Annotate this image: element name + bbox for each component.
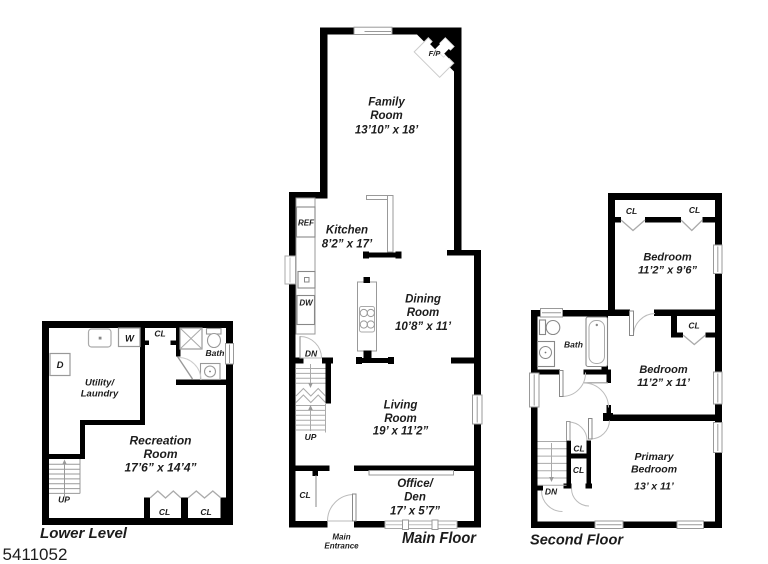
svg-text:17’ x 5’7”: 17’ x 5’7” <box>390 506 440 518</box>
svg-text:Den: Den <box>404 492 426 504</box>
svg-text:CL: CL <box>573 465 584 475</box>
svg-text:F/P: F/P <box>429 49 442 58</box>
svg-text:CL: CL <box>200 507 211 517</box>
svg-text:Primary: Primary <box>634 451 674 463</box>
svg-text:Dining: Dining <box>405 294 441 306</box>
svg-text:CL: CL <box>299 490 310 500</box>
svg-text:CL: CL <box>154 329 165 339</box>
svg-text:CL: CL <box>159 507 170 517</box>
svg-text:D: D <box>57 360 64 371</box>
svg-text:Kitchen: Kitchen <box>326 225 368 237</box>
svg-text:Room: Room <box>370 110 403 122</box>
svg-text:Second Floor: Second Floor <box>530 532 624 549</box>
svg-text:19’ x 11’2”: 19’ x 11’2” <box>373 426 429 438</box>
svg-text:11’2” x 11’: 11’2” x 11’ <box>637 377 691 389</box>
svg-text:13’ x 11’: 13’ x 11’ <box>634 481 675 493</box>
svg-text:UP: UP <box>58 495 70 505</box>
svg-text:13’10” x 18’: 13’10” x 18’ <box>355 125 419 137</box>
svg-text:Living: Living <box>384 400 418 412</box>
svg-text:DN: DN <box>545 487 558 497</box>
svg-text:Lower Level: Lower Level <box>40 526 128 542</box>
svg-text:Bedroom: Bedroom <box>639 364 688 376</box>
svg-text:10’8” x 11’: 10’8” x 11’ <box>395 321 452 333</box>
svg-text:CL: CL <box>689 205 700 215</box>
svg-text:DN: DN <box>305 349 318 359</box>
svg-text:DW: DW <box>299 299 314 308</box>
svg-text:5411052: 5411052 <box>3 545 68 564</box>
svg-text:REF: REF <box>298 219 315 228</box>
svg-text:Room: Room <box>144 447 178 461</box>
svg-text:Room: Room <box>384 413 417 425</box>
svg-text:8’2” x 17’: 8’2” x 17’ <box>322 239 373 251</box>
svg-text:Utility/: Utility/ <box>85 378 115 389</box>
svg-text:Main: Main <box>332 533 350 542</box>
svg-text:Bath: Bath <box>206 348 225 358</box>
svg-text:17’6” x 14’4”: 17’6” x 14’4” <box>124 461 196 475</box>
svg-text:Laundry: Laundry <box>81 389 119 400</box>
svg-text:Bedroom: Bedroom <box>643 252 692 264</box>
svg-text:Family: Family <box>368 97 405 109</box>
svg-text:CL: CL <box>626 206 637 216</box>
svg-text:Main Floor: Main Floor <box>402 530 477 547</box>
svg-text:11’2” x 9’6”: 11’2” x 9’6” <box>638 265 698 277</box>
svg-text:UP: UP <box>305 432 317 442</box>
svg-text:Bedroom: Bedroom <box>631 464 677 476</box>
svg-text:Recreation: Recreation <box>129 434 191 448</box>
svg-text:Entrance: Entrance <box>324 542 359 551</box>
svg-text:Room: Room <box>407 307 440 319</box>
svg-text:Office/: Office/ <box>397 478 434 490</box>
svg-text:CL: CL <box>688 321 699 331</box>
svg-text:Bath: Bath <box>564 340 583 350</box>
svg-text:CL: CL <box>573 444 584 454</box>
svg-text:W: W <box>125 334 135 345</box>
